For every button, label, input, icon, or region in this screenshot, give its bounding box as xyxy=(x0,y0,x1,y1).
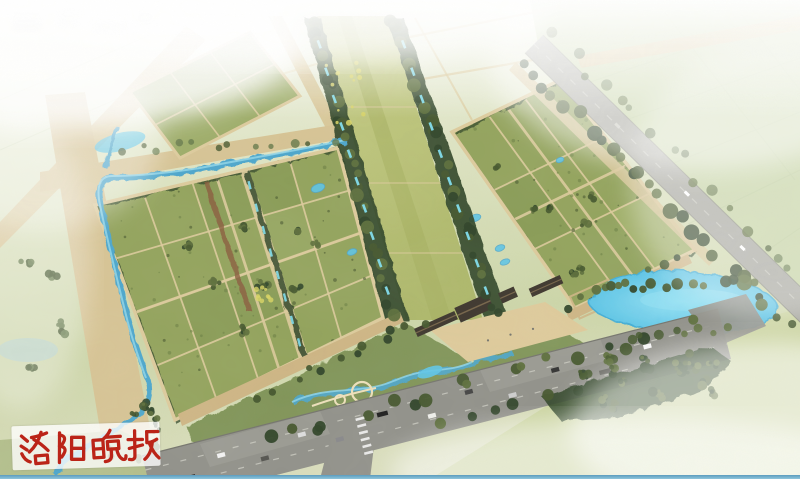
rendering-canvas: 洛阳晚报 xyxy=(0,0,800,479)
print-grain xyxy=(0,0,800,479)
watermark-character-yang xyxy=(59,433,83,463)
newspaper-watermark: 洛阳晚报 xyxy=(11,422,160,471)
watermark-character-luo xyxy=(20,432,49,465)
watermark-calligraphy xyxy=(11,422,160,471)
aerial-rendering xyxy=(0,0,800,479)
page-rule-line xyxy=(0,475,800,479)
watermark-character-wan xyxy=(92,429,126,462)
watermark-character-bao xyxy=(128,430,159,459)
